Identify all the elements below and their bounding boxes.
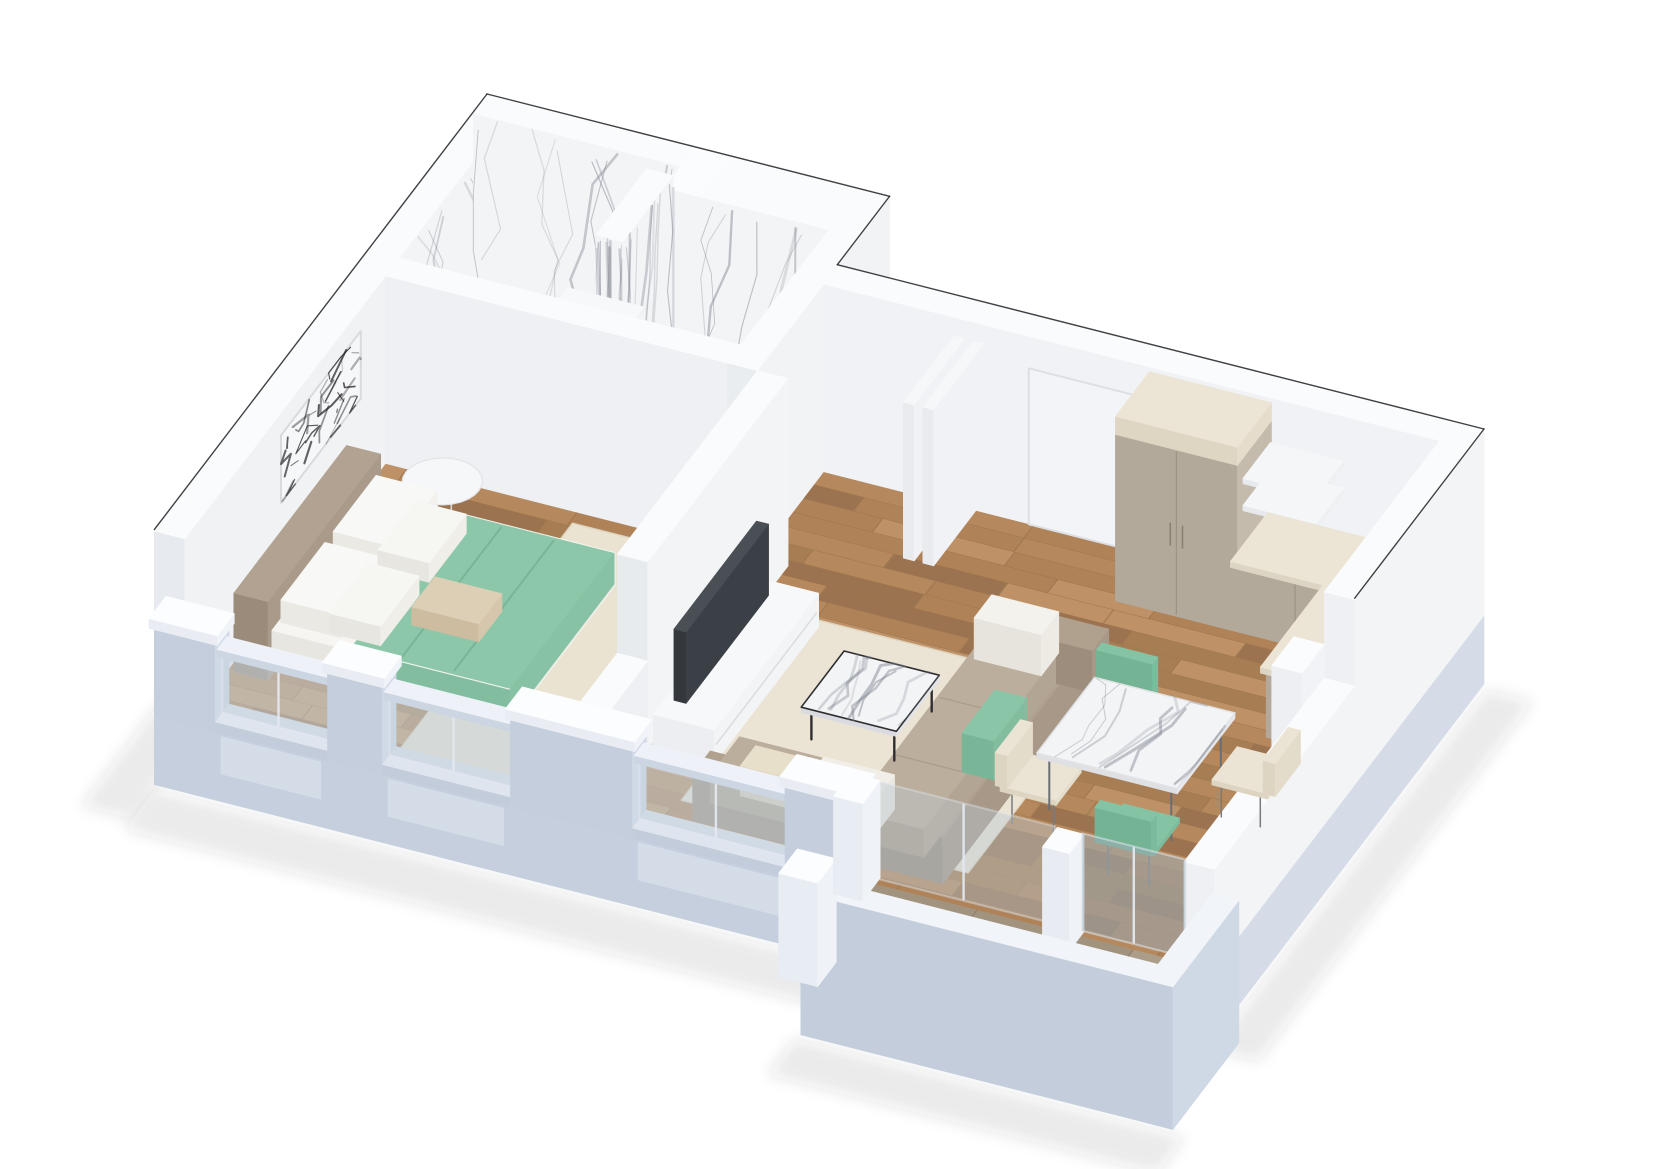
- balcony-pier-junction: [833, 773, 880, 901]
- render-root: [81, 94, 1533, 1169]
- balcony-glass-pier: [1042, 827, 1084, 951]
- balcony-pier-sw: [779, 849, 837, 987]
- floorplan-render-canvas: [0, 0, 1654, 1169]
- apartment-3d-floorplan: [0, 0, 1654, 1169]
